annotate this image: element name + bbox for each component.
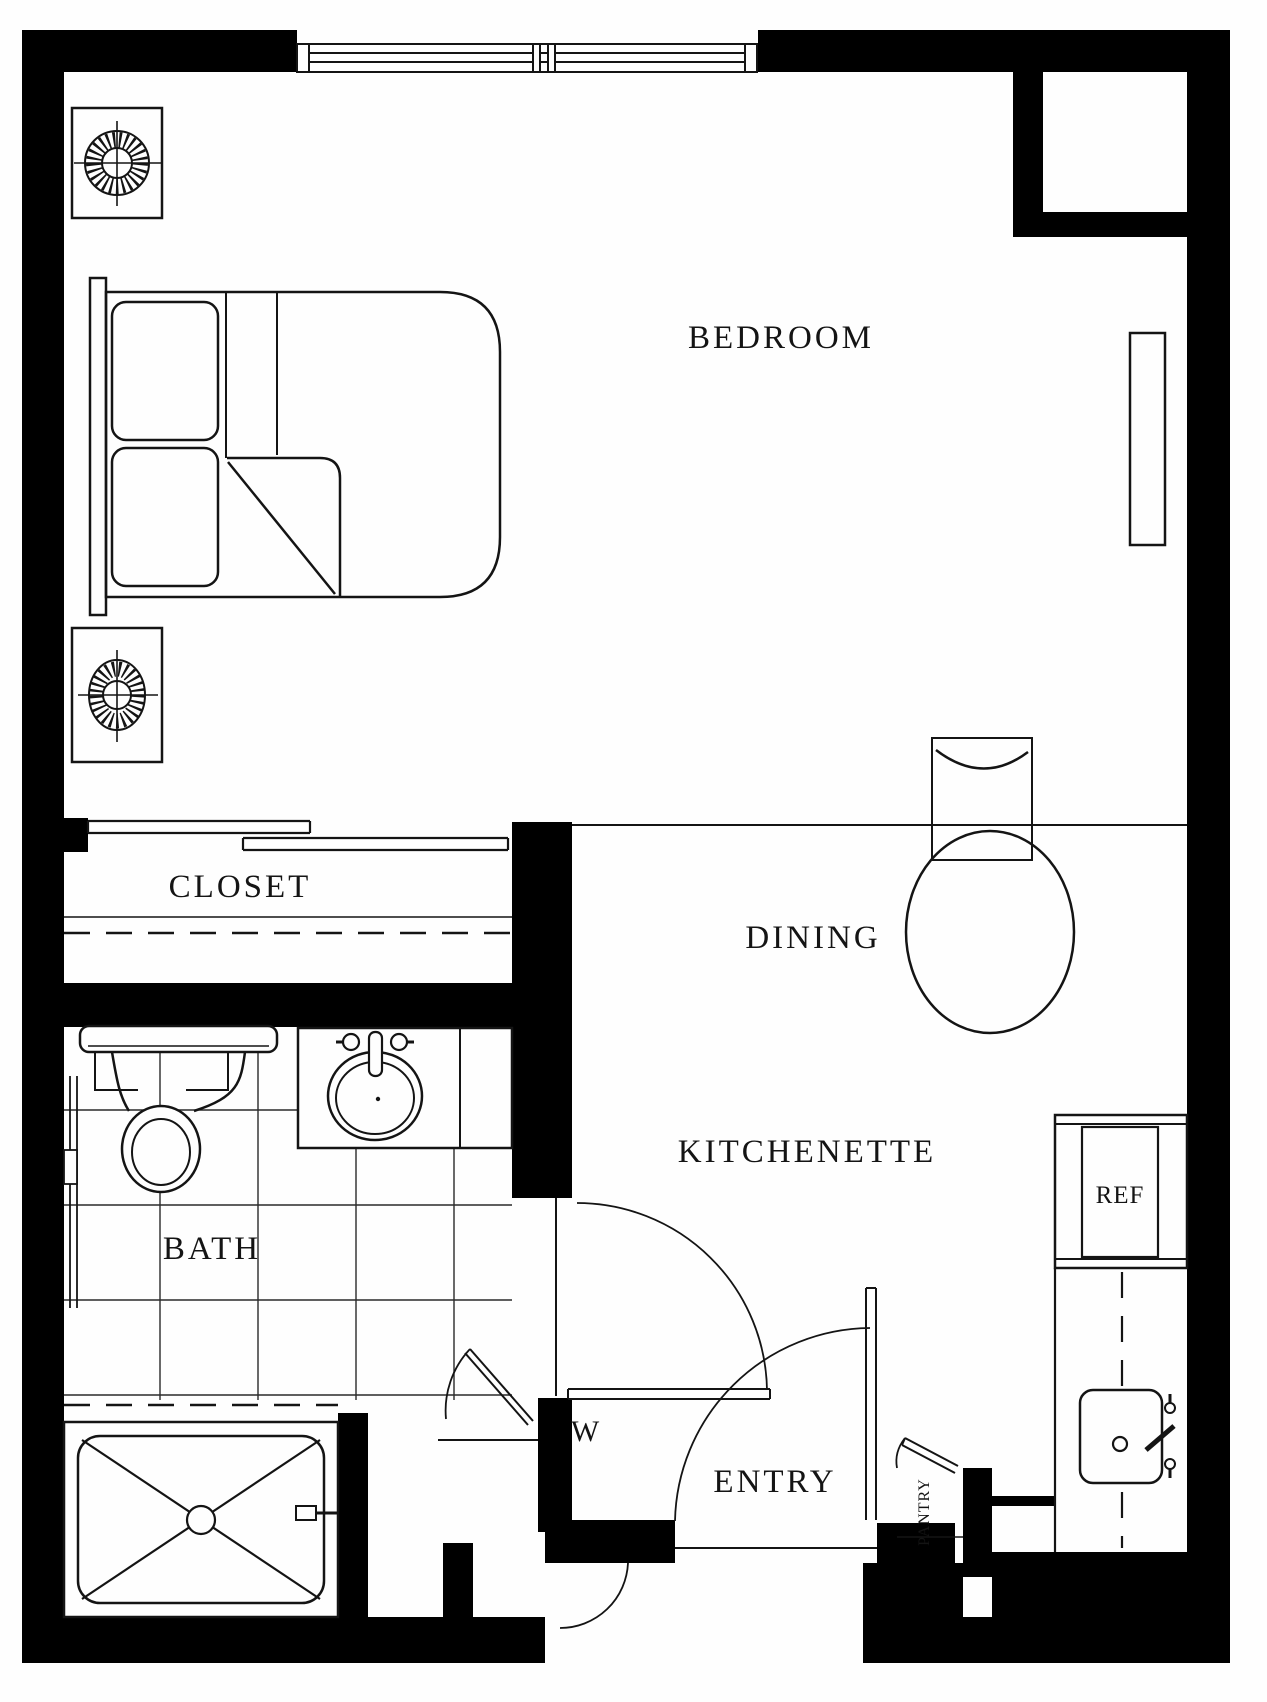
sink-spout (369, 1032, 382, 1076)
kitchen-faucet-knob-a (1165, 1403, 1175, 1413)
wall-counter-bottom (1055, 1552, 1230, 1617)
wall-closet-bath-right (512, 822, 572, 1198)
bed-headboard (90, 278, 106, 615)
bath-label: BATH (163, 1231, 261, 1267)
shower-drain (187, 1506, 215, 1534)
window-end-cap-left (297, 44, 309, 72)
tp-holder (64, 1150, 77, 1184)
wall-pantry-right (963, 1468, 992, 1577)
window-end-cap-right (745, 44, 757, 72)
pantry-label: PANTRY (916, 1478, 933, 1546)
bedroom-label: BEDROOM (688, 320, 874, 356)
wall-bath-exit-right (443, 1543, 473, 1623)
wall-top-right (758, 30, 1230, 72)
wall-closet-stub (64, 818, 88, 852)
wall-entry-left (545, 1520, 675, 1563)
vanity-sink (298, 1028, 512, 1148)
toilet-tank (80, 1026, 277, 1052)
ref-label: REF (1096, 1182, 1145, 1209)
entry-label: ENTRY (713, 1464, 836, 1500)
window-mullion-a (533, 44, 540, 72)
kitchenette-label: KITCHENETTE (678, 1134, 936, 1170)
floor-plan-drawing: BEDROOM CLOSET DINING BATH KITCHENETTE E… (0, 0, 1267, 1702)
paper-background (0, 0, 1267, 1702)
wall-bottom-left (22, 1617, 545, 1663)
w-marker-label: W (571, 1415, 600, 1448)
closet-label: CLOSET (169, 869, 312, 905)
wall-niche-bottom (1013, 212, 1193, 237)
wall-left (22, 30, 64, 1663)
kitchen-faucet-knob-b (1165, 1459, 1175, 1469)
wall-right (1187, 30, 1230, 1663)
sink-handle-right (391, 1034, 407, 1050)
wall-closet-bottom (64, 983, 512, 1027)
window-mullion-b (548, 44, 555, 72)
wall-notch-left (992, 1552, 1055, 1663)
wall-hall-block (538, 1398, 572, 1532)
shower-head-icon (296, 1506, 316, 1520)
dining-label: DINING (745, 920, 880, 956)
sink-handle-left (343, 1034, 359, 1050)
floor-plan-page: BEDROOM CLOSET DINING BATH KITCHENETTE E… (0, 0, 1267, 1702)
wall-counter-return (963, 1496, 1055, 1506)
